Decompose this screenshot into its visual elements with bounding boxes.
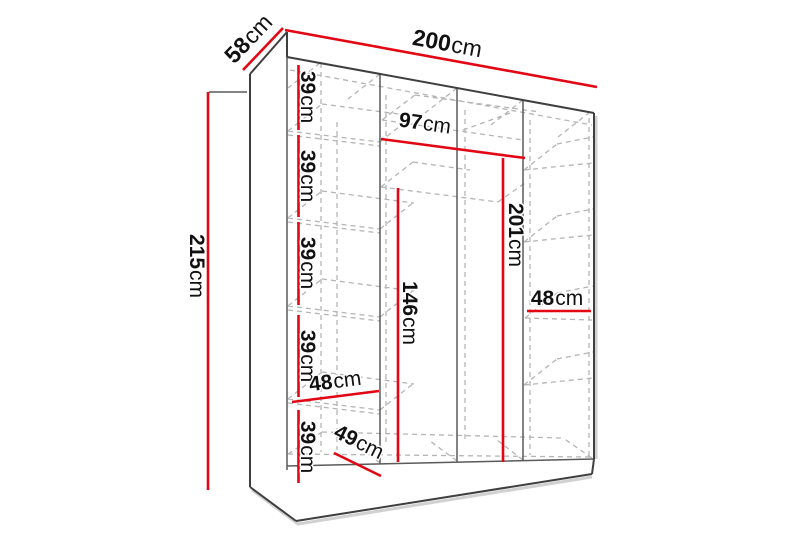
dim-line-middle-width: [381, 139, 525, 158]
label-width: 200cm: [411, 24, 485, 62]
wardrobe-diagram-canvas: 58cm 200cm 215cm 39cm 39cm 39cm 39cm 39c…: [0, 0, 800, 533]
label-depth: 58cm: [219, 9, 277, 68]
label-right-width: 48cm: [531, 287, 583, 310]
dimension-lines: [208, 28, 597, 490]
label-hanging-height: 146cm: [398, 281, 421, 345]
label-shelf-gap-3: 39cm: [296, 237, 319, 289]
label-shelf-gap-5: 39cm: [296, 421, 319, 473]
label-shelf-gap-1: 39cm: [296, 71, 319, 123]
label-height: 215cm: [185, 234, 208, 298]
label-shelf-gap-2: 39cm: [296, 150, 319, 202]
label-middle-width: 97cm: [397, 109, 452, 139]
wardrobe-diagram: 58cm 200cm 215cm 39cm 39cm 39cm 39cm 39c…: [0, 0, 800, 533]
label-middle-height: 201cm: [504, 203, 527, 267]
label-base-depth: 49cm: [330, 420, 387, 464]
